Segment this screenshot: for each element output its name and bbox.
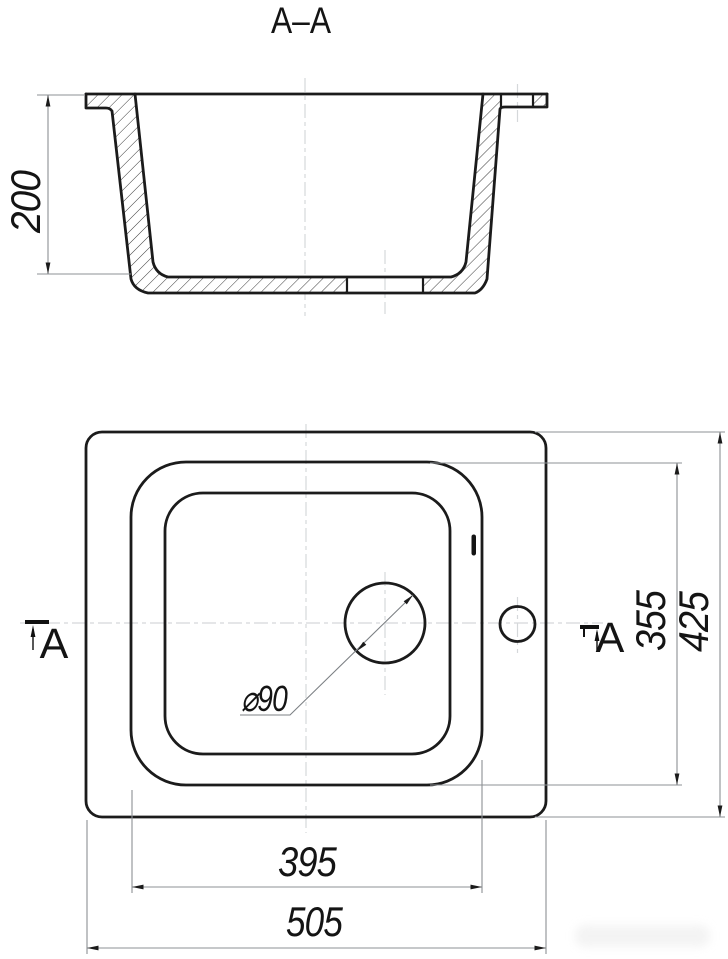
dim-200-arrow-up [46,95,51,107]
plan-outlines [86,432,546,817]
dim-425-arrow-up [718,432,723,444]
dim-200: 200 [2,95,131,274]
sink-outer-edge [86,432,546,817]
overflow-slot-mark [472,535,477,556]
dim-425-arrow-down [718,806,723,818]
drain-arrow-sw [357,642,366,651]
inner-bowl-profile [135,94,483,277]
plan-view: ⌀90 A A 355 [20,424,725,954]
hatch-flange-end-block [533,94,547,107]
sink-technical-drawing: A–A [0,0,728,959]
section-view: 200 [2,78,547,316]
section-marker-left: A [25,620,69,668]
dim-drain-label: ⌀90 [241,678,288,719]
section-hatch [86,94,547,293]
dim-355: 355 [430,463,682,785]
section-letter-right: A [596,614,625,662]
drawing-sheet: A–A [0,0,728,959]
dim-355-label: 355 [627,590,674,651]
plan-centerlines [20,424,603,833]
dim-505-arrow-left [87,946,99,951]
section-letter-left: A [40,620,69,668]
dim-355-arrow-up [675,463,680,475]
view-arrow-left [31,625,36,637]
dim-200-label: 200 [2,169,49,233]
dim-395-arrow-left [132,885,144,890]
section-marker-right: A [580,614,625,662]
dim-395-label: 395 [278,838,337,885]
hatch-left-wall [86,94,347,293]
section-title: A–A [271,0,331,41]
watermark [575,925,710,947]
dim-505-arrow-right [535,946,547,951]
dim-425-label: 425 [670,591,717,652]
dim-505-label: 505 [286,898,343,945]
dim-355-arrow-down [675,774,680,786]
dim-drain-diameter: ⌀90 [240,595,413,719]
dim-395: 395 [132,760,482,893]
dim-200-arrow-down [46,263,51,275]
dim-395-arrow-right [471,885,483,890]
